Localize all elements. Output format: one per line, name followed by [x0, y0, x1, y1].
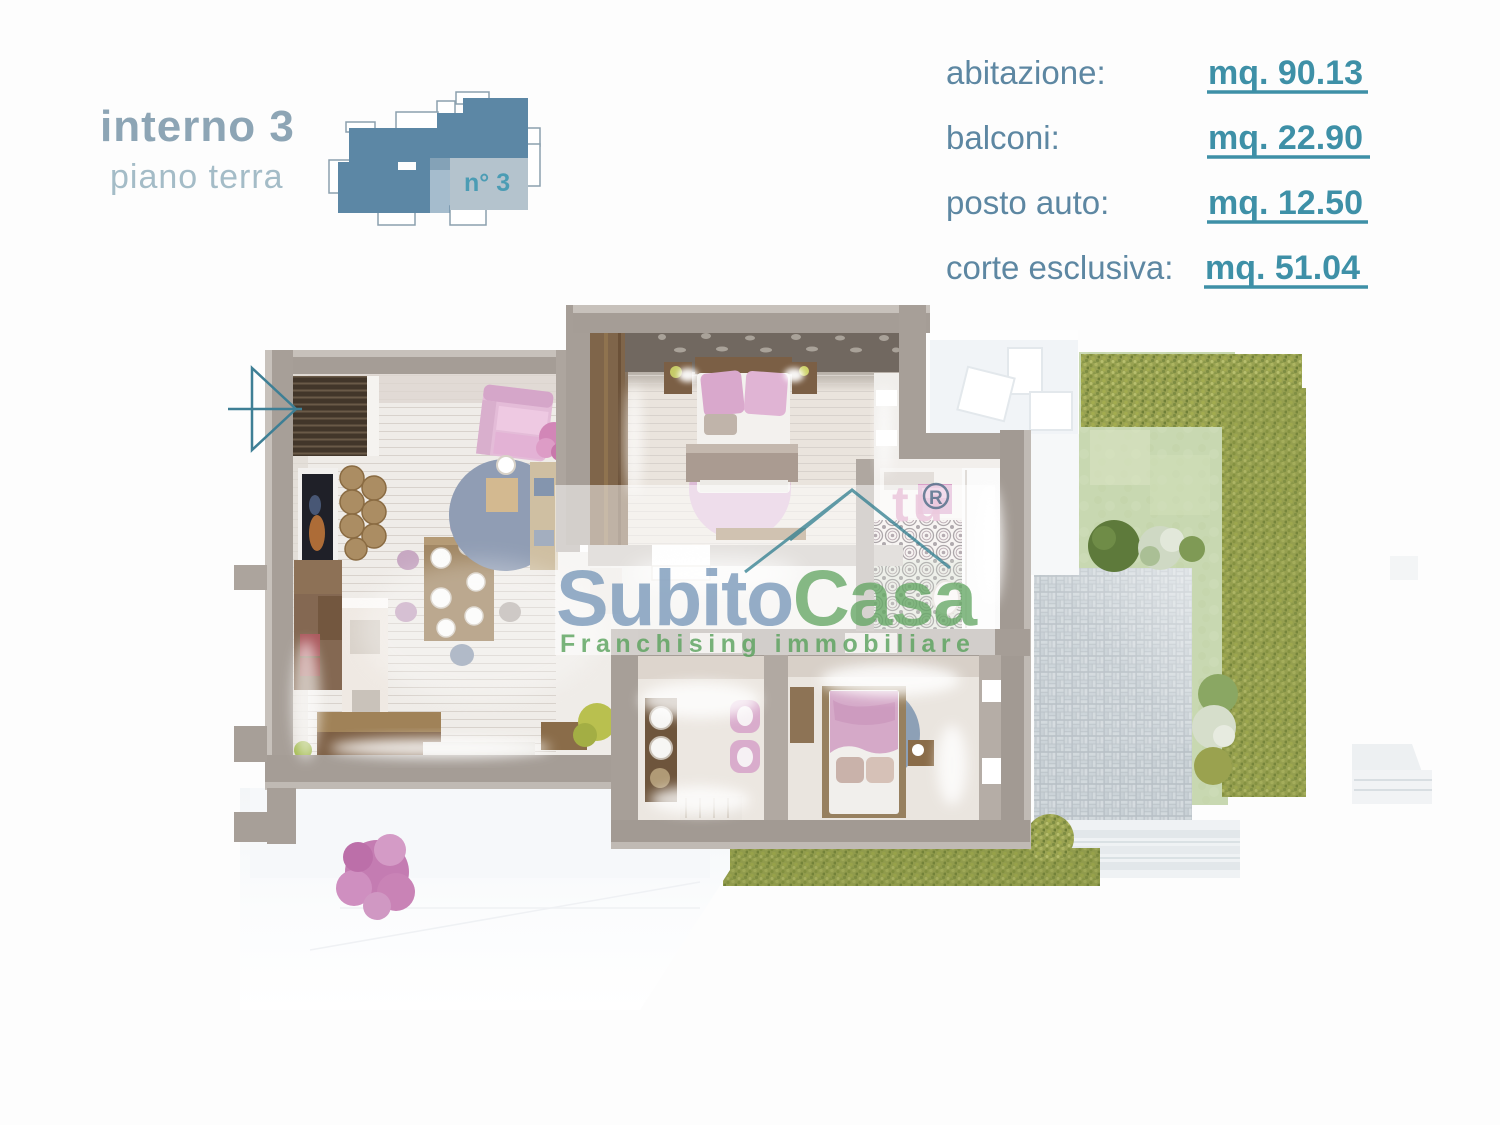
- svg-text:abitazione:: abitazione:: [946, 54, 1106, 91]
- svg-text:mq. 51.04: mq. 51.04: [1205, 249, 1360, 287]
- svg-text:Franchising immobiliare: Franchising immobiliare: [560, 630, 975, 658]
- svg-text:mq. 12.50: mq. 12.50: [1208, 184, 1363, 222]
- svg-text:balconi:: balconi:: [946, 119, 1060, 156]
- svg-text:mq. 90.13: mq. 90.13: [1208, 54, 1363, 92]
- svg-text:mq. 22.90: mq. 22.90: [1208, 119, 1363, 157]
- svg-text:n° 3: n° 3: [464, 169, 510, 197]
- svg-text:SubitoCasa: SubitoCasa: [556, 553, 978, 642]
- svg-text:R: R: [929, 488, 943, 509]
- svg-text:corte esclusiva:: corte esclusiva:: [946, 249, 1173, 286]
- svg-text:interno 3: interno 3: [100, 102, 295, 151]
- svg-text:posto auto:: posto auto:: [946, 184, 1109, 221]
- svg-text:piano terra: piano terra: [110, 158, 284, 196]
